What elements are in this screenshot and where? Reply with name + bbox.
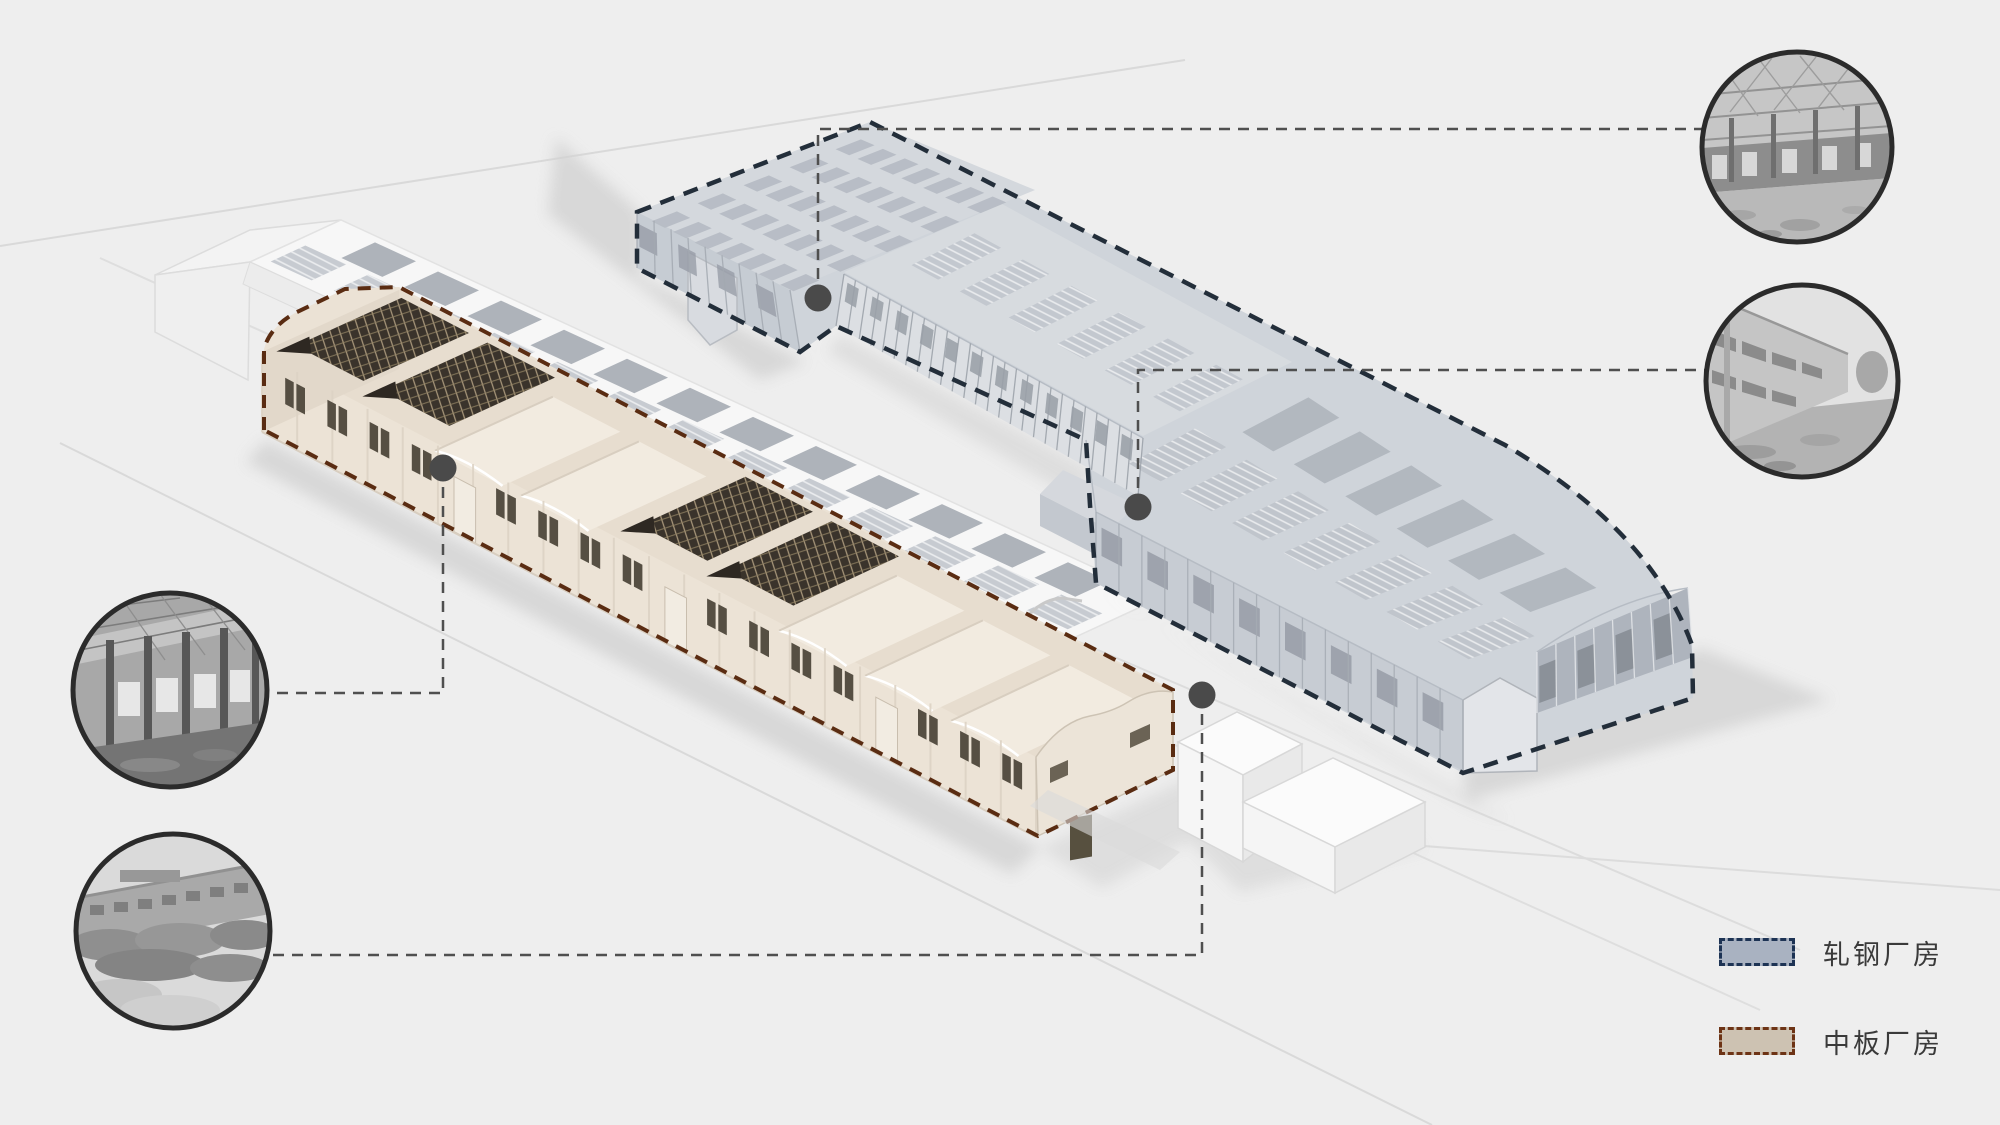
leader-dot-1 bbox=[805, 285, 832, 312]
legend-label-plate-mill: 中板厂房 bbox=[1823, 1022, 1943, 1061]
site-axonometric-drawing bbox=[0, 0, 2000, 1125]
leader-dot-4 bbox=[1189, 682, 1216, 709]
leader-dot-2 bbox=[1125, 494, 1152, 521]
legend-swatch-rolling-mill bbox=[1719, 938, 1795, 966]
site-diagram: 轧钢厂房 中板厂房 bbox=[0, 0, 2000, 1125]
legend-label-rolling-mill: 轧钢厂房 bbox=[1823, 933, 1943, 972]
legend-item-rolling-mill: 轧钢厂房 bbox=[1719, 932, 1943, 972]
leader-dot-3 bbox=[430, 455, 457, 482]
legend-item-plate-mill: 中板厂房 bbox=[1719, 1021, 1943, 1061]
legend-swatch-plate-mill bbox=[1719, 1027, 1795, 1055]
interior-columns-photo bbox=[71, 591, 269, 789]
